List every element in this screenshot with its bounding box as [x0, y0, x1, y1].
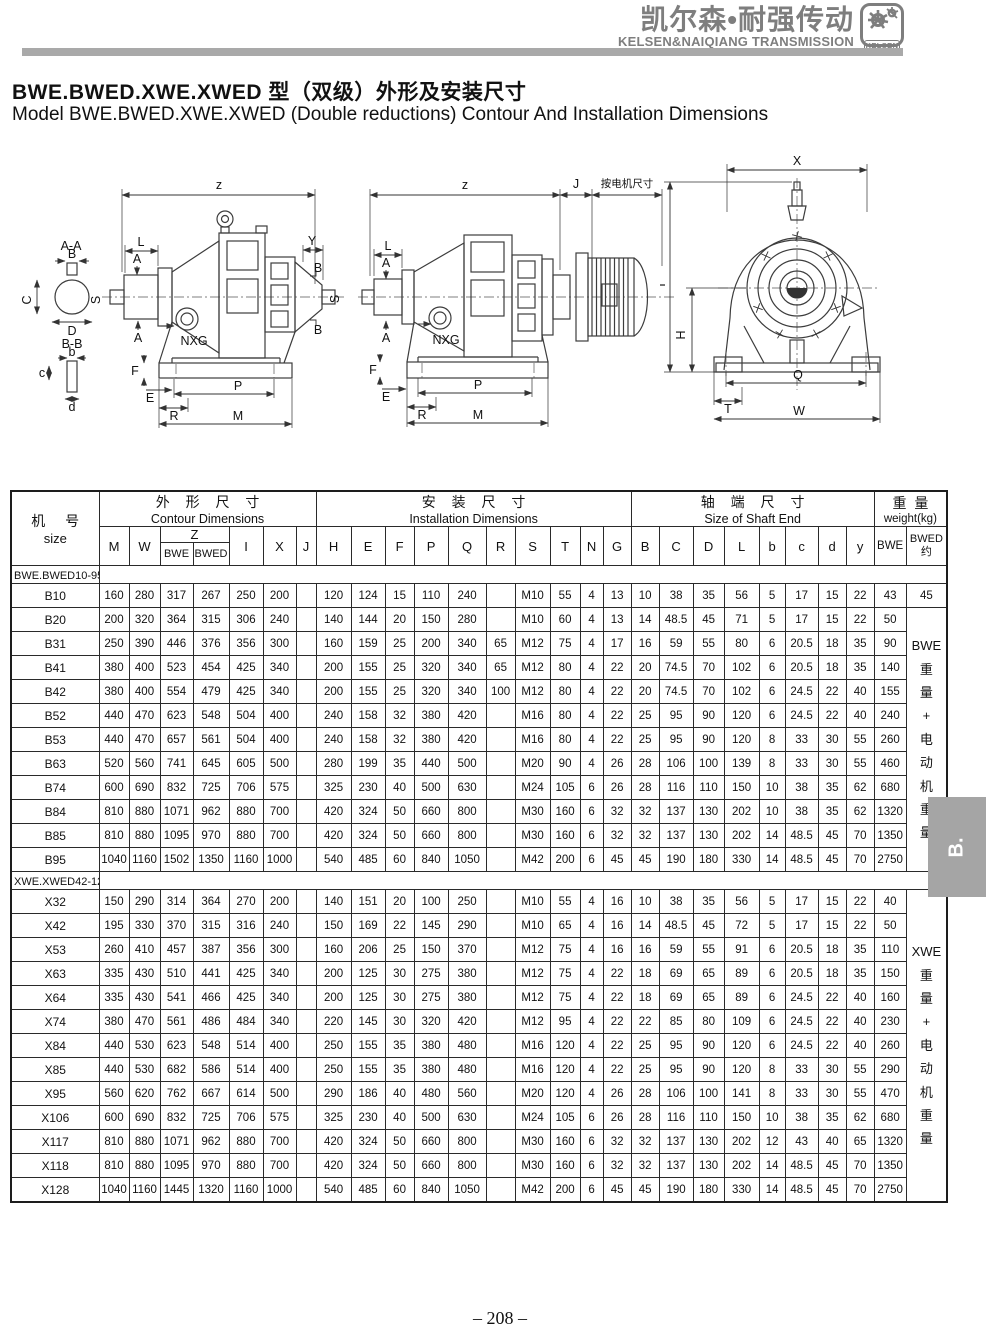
dim-cell: 605	[229, 752, 263, 776]
group-header-shaft-end: 轴 端 尺 寸 Size of Shaft End	[631, 491, 874, 527]
dim-cell: 18	[818, 632, 846, 656]
dim-cell: 151	[351, 890, 385, 914]
dim-label-b: b	[69, 345, 76, 359]
dim-cell: 95	[659, 704, 693, 728]
table-row: X4219533037031531624015016922145290M1065…	[11, 914, 947, 938]
table-row: X117810880107196288070042032450660800M30…	[11, 1130, 947, 1154]
col-header-P: P	[414, 527, 448, 566]
dim-cell: 800	[448, 1130, 486, 1154]
dim-cell: 35	[385, 752, 414, 776]
dim-cell: 4	[580, 608, 603, 632]
dim-cell: M16	[515, 1058, 550, 1082]
dim-cell: 810	[99, 1154, 129, 1178]
dim-cell: 35	[846, 962, 874, 986]
dim-cell: 485	[351, 848, 385, 872]
brand-block: 凯尔森•耐强传动 KELSEN&NAIQIANG TRANSMISSION	[618, 5, 854, 49]
dim-cell: 30	[385, 1010, 414, 1034]
dim-cell: M42	[515, 1178, 550, 1203]
section-label: BWE.BWED10-95号	[11, 566, 99, 584]
col-header-N: N	[580, 527, 603, 566]
table-row: X6333543051044142534020012530275380M1275…	[11, 962, 947, 986]
dim-cell: 324	[351, 1130, 385, 1154]
size-cell: X106	[11, 1106, 99, 1130]
dim-label-Q: Q	[793, 368, 803, 382]
dim-cell: M10	[515, 584, 550, 608]
drawing-bwe-side-view: A-A B C D S B-B b c d z	[22, 158, 352, 436]
dim-cell: 320	[129, 608, 160, 632]
dim-cell: 4	[580, 680, 603, 704]
size-cell: B84	[11, 800, 99, 824]
dim-cell	[486, 914, 515, 938]
dim-label-M: M	[473, 408, 483, 422]
col-header-E: E	[351, 527, 385, 566]
dim-cell: 657	[160, 728, 193, 752]
dim-cell: 155	[351, 1058, 385, 1082]
dim-cell: 340	[263, 986, 296, 1010]
dim-cell: 110	[874, 938, 906, 962]
table-row: X6433543054146642534020012530275380M1275…	[11, 986, 947, 1010]
dim-cell: 17	[785, 608, 818, 632]
dim-cell: 324	[351, 824, 385, 848]
dim-cell: M12	[515, 962, 550, 986]
dim-cell: 60	[385, 848, 414, 872]
dim-cell: 14	[759, 1178, 785, 1203]
size-cell: X42	[11, 914, 99, 938]
dim-cell: 95	[659, 728, 693, 752]
dim-cell: 22	[603, 986, 631, 1010]
dim-cell: 832	[160, 776, 193, 800]
dim-cell: 680	[874, 776, 906, 800]
dim-cell: 89	[724, 986, 759, 1010]
dim-cell	[486, 1178, 515, 1203]
dim-cell: 40	[846, 680, 874, 704]
cut-label-A-top: A	[382, 256, 391, 270]
dim-label-z: z	[462, 178, 468, 192]
dim-label-d: d	[69, 400, 76, 414]
dim-cell: 457	[160, 938, 193, 962]
dim-cell: 43	[785, 1130, 818, 1154]
dim-cell: 250	[99, 632, 129, 656]
dim-cell: 15	[818, 584, 846, 608]
dim-cell: 25	[385, 632, 414, 656]
col-header-C: C	[659, 527, 693, 566]
page-title-en: Model BWE.BWED.XWE.XWED (Double reductio…	[12, 104, 768, 126]
weight-note: XWE 重 量 + 电 动 机 重 量	[906, 890, 947, 1203]
dim-cell: 425	[229, 986, 263, 1010]
dim-cell: 420	[316, 824, 351, 848]
weight-cn: 重 量	[875, 493, 947, 513]
dim-cell	[486, 824, 515, 848]
dim-cell: 1350	[874, 1154, 906, 1178]
installation-en: Installation Dimensions	[317, 512, 631, 526]
kelsen-logo: KELSEN	[860, 3, 904, 47]
dim-cell	[296, 938, 316, 962]
dim-cell: 4	[580, 1058, 603, 1082]
dim-cell: 80	[693, 1010, 724, 1034]
dim-cell: 106	[659, 1082, 693, 1106]
dim-cell: 26	[603, 1082, 631, 1106]
dim-cell: 6	[580, 776, 603, 800]
dim-cell: 50	[874, 608, 906, 632]
section-label: XWE.XWED42-128号	[11, 872, 99, 890]
dim-cell: M30	[515, 824, 550, 848]
page-title-cn: BWE.BWED.XWE.XWED 型（双级）外形及安装尺寸	[12, 76, 526, 106]
dim-cell: 1071	[160, 800, 193, 824]
dim-cell: 725	[193, 1106, 229, 1130]
dim-cell: 130	[693, 824, 724, 848]
size-cell: X74	[11, 1010, 99, 1034]
dim-cell: 420	[316, 800, 351, 824]
dim-cell	[296, 608, 316, 632]
dim-cell: 59	[659, 632, 693, 656]
dim-label-X: X	[793, 154, 802, 168]
dim-cell: 10	[759, 776, 785, 800]
col-header-c: c	[785, 527, 818, 566]
dim-cell: 514	[229, 1034, 263, 1058]
dim-cell: 145	[414, 914, 448, 938]
dim-cell: 32	[603, 800, 631, 824]
dim-cell: 32	[603, 824, 631, 848]
dim-label-T: T	[724, 402, 732, 416]
page-number: – 208 –	[0, 1308, 1000, 1329]
dim-cell: 137	[659, 1154, 693, 1178]
dim-cell: 356	[229, 632, 263, 656]
dim-cell: 74.5	[659, 680, 693, 704]
dim-cell	[296, 914, 316, 938]
dim-cell: 48.5	[785, 824, 818, 848]
dim-cell: 380	[448, 962, 486, 986]
dim-cell: M10	[515, 890, 550, 914]
dim-cell: 195	[99, 914, 129, 938]
dim-cell	[486, 704, 515, 728]
dim-cell: 40	[385, 1106, 414, 1130]
dim-cell: 410	[129, 938, 160, 962]
dim-cell: 125	[351, 986, 385, 1010]
dim-cell: 800	[448, 824, 486, 848]
dim-cell: 1071	[160, 1130, 193, 1154]
dim-cell: 260	[874, 1034, 906, 1058]
dim-cell: 6	[580, 824, 603, 848]
dim-cell: 72	[724, 914, 759, 938]
dim-cell: 10	[631, 890, 659, 914]
size-cell: B63	[11, 752, 99, 776]
dim-cell: 35	[385, 1034, 414, 1058]
dim-cell: 160	[550, 1130, 580, 1154]
dim-cell: 120	[724, 1034, 759, 1058]
dim-cell: 56	[724, 584, 759, 608]
dim-cell: 370	[448, 938, 486, 962]
dim-label-B: B	[68, 247, 76, 261]
dim-cell: 1095	[160, 1154, 193, 1178]
dim-cell	[486, 1154, 515, 1178]
dim-cell: 440	[414, 752, 448, 776]
dim-cell: 700	[263, 800, 296, 824]
col-header-F: F	[385, 527, 414, 566]
dim-cell: 62	[846, 800, 874, 824]
dim-cell: 2750	[874, 848, 906, 872]
dim-label-L: L	[385, 239, 392, 253]
col-header-b: b	[759, 527, 785, 566]
dim-cell: 158	[351, 728, 385, 752]
dim-cell: 364	[160, 608, 193, 632]
dim-cell: 30	[385, 986, 414, 1010]
dim-cell: 300	[263, 632, 296, 656]
size-cell: X128	[11, 1178, 99, 1203]
dim-cell: 335	[99, 986, 129, 1010]
dim-cell: 109	[724, 1010, 759, 1034]
dim-cell	[296, 584, 316, 608]
dim-cell: 270	[229, 890, 263, 914]
dim-cell: 810	[99, 800, 129, 824]
dim-cell: 45	[818, 848, 846, 872]
size-cell: B74	[11, 776, 99, 800]
dim-cell: 325	[316, 776, 351, 800]
dim-cell: 340	[263, 680, 296, 704]
dim-cell: 504	[229, 728, 263, 752]
dim-cell: 45	[631, 848, 659, 872]
dim-cell: 832	[160, 1106, 193, 1130]
dim-label-E: E	[146, 391, 154, 405]
dim-cell: 22	[846, 584, 874, 608]
dim-cell: 75	[550, 962, 580, 986]
dim-label-W: W	[793, 404, 805, 418]
dim-cell: 700	[263, 1154, 296, 1178]
dim-label-R: R	[417, 408, 426, 422]
dim-cell: 380	[99, 656, 129, 680]
dim-cell: M16	[515, 704, 550, 728]
dim-cell: 425	[229, 962, 263, 986]
dim-cell: 22	[603, 680, 631, 704]
dim-cell: 14	[759, 848, 785, 872]
dim-cell: 660	[414, 800, 448, 824]
dimensions-table-wrap: 机 号 size 外 形 尺 寸 Contour Dimensions 安 装 …	[10, 490, 948, 1203]
dim-cell: 340	[263, 962, 296, 986]
dim-label-H: H	[674, 330, 688, 339]
dim-cell	[296, 962, 316, 986]
dim-cell: 2750	[874, 1178, 906, 1203]
dim-cell: 160	[874, 986, 906, 1010]
table-row: X8444053062354851440025015535380480M1612…	[11, 1034, 947, 1058]
dim-cell: 1000	[263, 1178, 296, 1203]
dim-cell: 45	[818, 1178, 846, 1203]
dim-cell: 4	[580, 914, 603, 938]
dim-cell: 130	[693, 800, 724, 824]
dim-label-P: P	[474, 378, 482, 392]
dim-cell: 6	[759, 656, 785, 680]
dim-cell	[486, 1010, 515, 1034]
dim-cell: 18	[631, 962, 659, 986]
dim-cell: 600	[99, 1106, 129, 1130]
dim-cell: 320	[414, 656, 448, 680]
dim-cell: 95	[659, 1034, 693, 1058]
group-header-installation: 安 装 尺 寸 Installation Dimensions	[316, 491, 631, 527]
dim-cell: 480	[448, 1034, 486, 1058]
dim-cell: 190	[659, 1178, 693, 1203]
size-cell: B95	[11, 848, 99, 872]
dim-cell: 1320	[193, 1178, 229, 1203]
dim-cell: 80	[550, 704, 580, 728]
dim-cell: 20.5	[785, 656, 818, 680]
dim-cell: 290	[129, 890, 160, 914]
size-cell: X117	[11, 1130, 99, 1154]
dim-cell: 762	[160, 1082, 193, 1106]
dim-cell: 22	[818, 704, 846, 728]
size-cell: X32	[11, 890, 99, 914]
dim-cell: 440	[99, 1034, 129, 1058]
dim-cell: 230	[874, 1010, 906, 1034]
dim-cell: 71	[724, 608, 759, 632]
dim-cell: 38	[659, 890, 693, 914]
gear-icon	[863, 6, 901, 30]
dim-cell: 80	[550, 728, 580, 752]
dim-cell: 6	[759, 938, 785, 962]
dim-cell: 554	[160, 680, 193, 704]
dim-cell: 18	[818, 938, 846, 962]
col-header-X: X	[263, 527, 296, 566]
dim-cell: 89	[724, 962, 759, 986]
group-header-contour: 外 形 尺 寸 Contour Dimensions	[99, 491, 316, 527]
dim-cell: 320	[414, 680, 448, 704]
dim-cell: 40	[846, 1010, 874, 1034]
dim-cell: 26	[603, 1106, 631, 1130]
dim-cell: M12	[515, 986, 550, 1010]
size-cell: X95	[11, 1082, 99, 1106]
header-divider	[22, 48, 903, 56]
dim-cell: 8	[759, 752, 785, 776]
dim-cell: 706	[229, 776, 263, 800]
contour-cn: 外 形 尺 寸	[100, 492, 316, 512]
dim-cell: 4	[580, 704, 603, 728]
dim-cell: 330	[724, 848, 759, 872]
dim-cell: 102	[724, 656, 759, 680]
dim-label-L: L	[138, 235, 145, 249]
dim-cell: 561	[193, 728, 229, 752]
section-index-tab: B.	[928, 797, 986, 897]
dim-cell: 30	[385, 962, 414, 986]
dim-cell: 50	[385, 1130, 414, 1154]
dim-cell: 376	[193, 632, 229, 656]
dim-cell: 700	[263, 824, 296, 848]
dim-cell: 159	[351, 632, 385, 656]
table-row: B312503904463763563001601592520034065M12…	[11, 632, 947, 656]
dim-cell: 300	[263, 938, 296, 962]
dim-cell: 70	[846, 848, 874, 872]
dim-cell: 440	[99, 728, 129, 752]
dim-label-M: M	[233, 409, 243, 423]
col-header-y: y	[846, 527, 874, 566]
dim-cell: 45	[818, 1154, 846, 1178]
dim-cell: 139	[724, 752, 759, 776]
dim-cell: 70	[693, 656, 724, 680]
dim-cell: 315	[193, 608, 229, 632]
dim-cell: 150	[414, 608, 448, 632]
dim-cell: 15	[818, 890, 846, 914]
dim-cell: 1160	[229, 1178, 263, 1203]
dim-cell: 140	[316, 608, 351, 632]
dim-cell: 48.5	[659, 914, 693, 938]
dim-cell: 520	[99, 752, 129, 776]
dim-cell: 60	[550, 608, 580, 632]
dim-cell: 32	[385, 728, 414, 752]
dim-cell: 150	[99, 890, 129, 914]
dim-cell: 290	[316, 1082, 351, 1106]
dim-cell: 90	[693, 1034, 724, 1058]
dim-cell: 137	[659, 824, 693, 848]
col-header-T: T	[550, 527, 580, 566]
group-header-weight: 重 量 weight(kg)	[874, 491, 947, 527]
dim-cell: 240	[874, 704, 906, 728]
dim-cell: 324	[351, 1154, 385, 1178]
dim-cell: 800	[448, 1154, 486, 1178]
table-row: X8544053068258651440025015535380480M1612…	[11, 1058, 947, 1082]
dim-cell: 16	[603, 938, 631, 962]
dim-cell: 24.5	[785, 1034, 818, 1058]
dim-cell: 530	[129, 1034, 160, 1058]
dim-cell: 155	[351, 656, 385, 680]
dim-cell: 470	[874, 1082, 906, 1106]
dim-cell: 65	[846, 1130, 874, 1154]
dim-cell: 400	[263, 1034, 296, 1058]
dim-cell: 420	[448, 704, 486, 728]
col-header-M: M	[99, 527, 129, 566]
dim-cell: 600	[99, 776, 129, 800]
dim-cell: 420	[448, 1010, 486, 1034]
table-row: B84810880107196288070042032450660800M301…	[11, 800, 947, 824]
dim-cell	[296, 776, 316, 800]
dim-cell: M30	[515, 1154, 550, 1178]
dim-cell: 70	[693, 680, 724, 704]
dim-cell: 500	[414, 776, 448, 800]
dim-cell: 400	[129, 680, 160, 704]
size-cell: B52	[11, 704, 99, 728]
dim-label-P: P	[234, 379, 242, 393]
dim-cell: 102	[724, 680, 759, 704]
dim-cell: 6	[580, 800, 603, 824]
dim-cell: 199	[351, 752, 385, 776]
dim-cell: 6	[759, 1034, 785, 1058]
table-row: B5244047062354850440024015832380420M1680…	[11, 704, 947, 728]
dim-cell: 1040	[99, 1178, 129, 1203]
dim-cell: 645	[193, 752, 229, 776]
dim-cell: 150	[414, 938, 448, 962]
dim-cell: 35	[846, 938, 874, 962]
dim-cell: 18	[818, 656, 846, 680]
dim-cell	[296, 1082, 316, 1106]
dim-cell: 470	[129, 728, 160, 752]
dim-cell: 541	[160, 986, 193, 1010]
size-cell: B10	[11, 584, 99, 608]
dim-cell: 150	[724, 1106, 759, 1130]
shaft-end-cn: 轴 端 尺 寸	[632, 492, 874, 512]
dim-cell: 575	[263, 1106, 296, 1130]
dim-cell: 22	[818, 1034, 846, 1058]
dim-cell: 200	[263, 584, 296, 608]
dim-cell: 4	[580, 962, 603, 986]
dim-cell: 90	[550, 752, 580, 776]
size-header-en: size	[12, 531, 99, 546]
dim-cell: 440	[99, 704, 129, 728]
dim-cell: 4	[580, 632, 603, 656]
size-cell: X64	[11, 986, 99, 1010]
dim-cell: 28	[631, 752, 659, 776]
dim-cell	[296, 752, 316, 776]
dim-cell: 120	[550, 1058, 580, 1082]
dim-cell: M20	[515, 752, 550, 776]
dim-cell: 22	[818, 986, 846, 1010]
col-header-Z: Z	[160, 527, 229, 543]
dim-cell: M30	[515, 800, 550, 824]
table-row: X7438047056148648434022014530320420M1295…	[11, 1010, 947, 1034]
